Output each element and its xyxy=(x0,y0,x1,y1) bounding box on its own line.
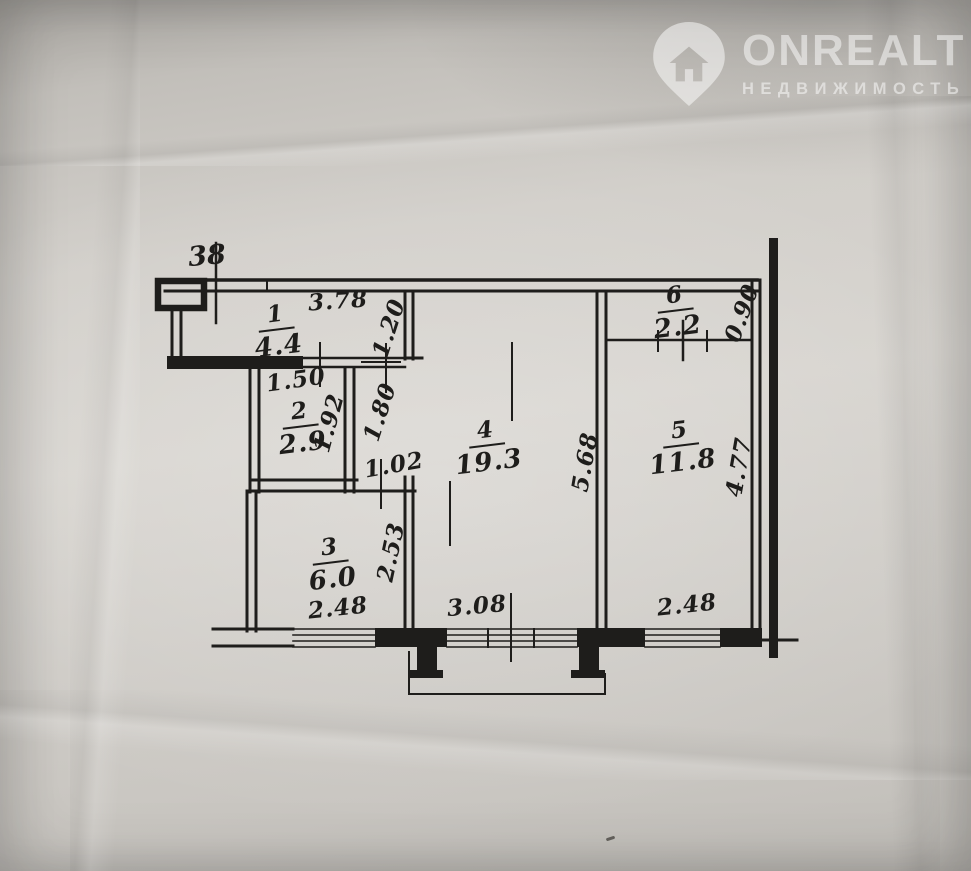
room-area: 6.0 xyxy=(307,564,358,596)
room-area: 11.8 xyxy=(648,445,718,479)
room-number: 3 xyxy=(310,534,349,566)
dim-hall-width: 3.78 xyxy=(307,287,368,314)
room-label-4: 4 19.3 xyxy=(450,415,524,480)
dim-window-right: 2.48 xyxy=(656,590,718,619)
dim-window-left: 2.48 xyxy=(307,593,369,622)
apartment-number-label: 38 xyxy=(187,241,227,271)
room-label-6: 6 2.2 xyxy=(649,281,704,343)
room-number: 5 xyxy=(660,417,699,449)
room-label-5: 5 11.8 xyxy=(644,415,718,480)
scanned-floorplan-photo: ONREALT НЕДВИЖИМОСТЬ xyxy=(0,0,971,871)
room-area: 2.2 xyxy=(652,312,703,344)
dim-window-center: 3.08 xyxy=(446,592,508,620)
room-number: 4 xyxy=(466,417,505,449)
room-number: 2 xyxy=(280,398,319,430)
room-label-1: 1 4.4 xyxy=(250,300,305,362)
room-number: 1 xyxy=(256,301,295,333)
room-area: 19.3 xyxy=(454,445,524,479)
room-number: 6 xyxy=(655,282,694,314)
room-label-3: 3 6.0 xyxy=(304,533,359,595)
room-area: 4.4 xyxy=(253,331,304,363)
